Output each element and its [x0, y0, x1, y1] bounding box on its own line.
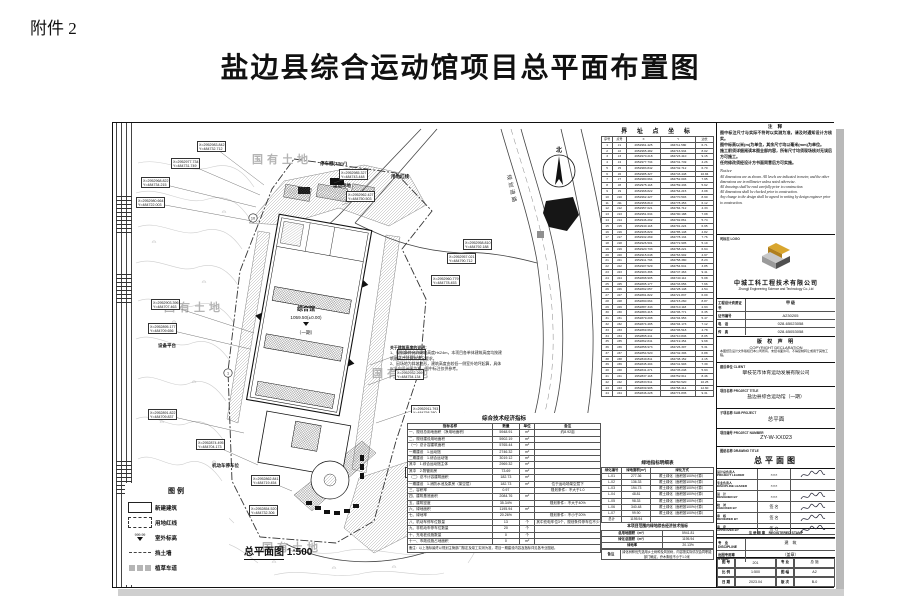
signature-row: 校 对CHECKED BY签 名: [717, 502, 835, 513]
height-note-block: 关于建筑高度的说明： 1、规划条件允许建筑高度H≤24m，本项目各单体建筑高度均…: [390, 345, 502, 371]
green-table-title: 绿地指标明细表: [601, 459, 714, 467]
table-row: 一、规划总用地面积（净用地面积）5948.91m²约8.92亩: [408, 430, 601, 436]
sheet-shadow-bottom: [118, 589, 844, 596]
plan-scale-label: 总平面图 1:500: [244, 543, 312, 558]
legend-item: 999.99室外标高: [125, 530, 229, 545]
signature-scribble: [800, 492, 826, 501]
copyright-title-zh: 版 权 声 明: [720, 338, 832, 345]
table-row: 44J442952846.228484774.8359.31: [602, 391, 714, 397]
svg-text:综合馆: 综合馆: [297, 305, 315, 313]
firm-info-row: 证书编号A230205: [717, 311, 835, 319]
legend-item: 挡土墙: [125, 545, 229, 560]
stamp-row: 注 册 师 章 REGISTERED STAMP: [717, 529, 835, 538]
drawing-sheet: 北 规划道路 国有土地 国有土地 国有土地 国有土地 综合馆 1059.50: [112, 122, 834, 588]
signature-row: 审 核REVIEWED BY签 名: [717, 513, 835, 524]
svg-text:1059.50(±0.00): 1059.50(±0.00): [290, 315, 322, 320]
svg-text:国有土地: 国有土地: [252, 152, 312, 166]
credential-section: 工程设计资质证书 甲 级 证书编号A230205电 话028-65023058传…: [717, 299, 835, 337]
firm-logo-icon: [759, 242, 793, 272]
boundary-table-title: 界 址 点 坐 标: [601, 125, 714, 136]
subproject-field: 子项名称 SUB PROJECT 总平面: [717, 409, 835, 429]
coordinate-callout: X=2952980.664Y=484722.003: [136, 197, 165, 208]
red-line-label: 用地红线: [391, 174, 409, 180]
page: 附件 2 盐边县综合运动馆项目总平面布置图: [0, 0, 921, 596]
coordinate-callout: X=2952977.734Y=484731.749: [171, 158, 200, 169]
eco-table-title: 综合技术经济指标: [407, 413, 601, 423]
firm-section-label: 司标志 LOGO: [720, 236, 832, 241]
coordinate-callout: X=2952968.822Y=484734.215: [141, 177, 170, 188]
client-field: 建设单位 CLIENT 攀枝花市体育运动发展有限公司: [717, 363, 835, 387]
meta-value: B-0: [794, 577, 835, 587]
green-remark: 绿化树种优先选用乡土树种及风景树，内容按实际情况会同职能部门确定，乔木胸径不小于…: [620, 550, 713, 560]
coordinate-callout: X=2952960.779Y=484778.453: [431, 275, 460, 286]
cert-row: 出图专用章 STAMP（盖章）: [717, 550, 835, 562]
plan-name: 总平面图: [244, 547, 284, 560]
svg-text:1: 1: [227, 372, 229, 376]
green-remark-label: 备注: [602, 550, 621, 560]
legend-title: 图例: [125, 486, 229, 496]
firm-logo: [720, 242, 832, 277]
signature-row: 设计总负责人PROJECT LEADER×××: [717, 469, 835, 480]
coordinate-callout: X=2952862.841Y=484719.454: [251, 475, 280, 486]
table-row: 总计1195.94: [602, 516, 714, 522]
green-summary-title: 本项目范围内绿地综合经济技术指标: [601, 523, 714, 530]
signature-scribble: [800, 503, 826, 512]
notes-section: 注 释 图中标注尺寸与实际不符时以实测为准，请及时通知设计方核实。图中标高以米(…: [717, 123, 835, 235]
table-row: 八、机动车停车位数量13个其中充电车位3个，规划条件停车位不少于13个: [408, 519, 601, 525]
coordinate-callout: X=2952958.810Y=484792.188: [463, 239, 492, 250]
signature-row: 专业负责人DISCIPLINE LEADER×××: [717, 480, 835, 491]
copyright-text: 本图纸及设计文件版权归本公司所有，未经书面许可，不得复制转让或用于其他工程。: [720, 350, 832, 358]
coordinate-callout: X=2952891.822Y=484709.837: [148, 409, 177, 420]
firm-name-en: Zhongji Engineering Science and Technolo…: [720, 287, 832, 291]
sheet-shadow-right: [836, 129, 844, 591]
coordinate-callout: X=2952874.495Y=484704.173: [196, 439, 225, 450]
firm-section: 司标志 LOGO 中城工科工程技术有限公司 Zhongji Engineerin…: [717, 235, 835, 299]
page-title: 盐边县综合运动馆项目总平面布置图: [0, 46, 921, 86]
svg-text:10: 10: [251, 217, 255, 221]
firm-name-zh: 中城工科工程技术有限公司: [720, 278, 832, 287]
attachment-label: 附件 2: [30, 14, 77, 39]
coordinate-callout: X=2952985.327Y=484743.448: [339, 169, 368, 180]
existing-structure-annex: [537, 231, 544, 238]
coordinate-callout: X=2952854.520Y=484732.306: [249, 505, 278, 516]
road-name-label: 规划道路: [505, 174, 519, 205]
signature-section: 设计总负责人PROJECT LEADER×××专业负责人DISCIPLINE L…: [717, 469, 835, 529]
coordinate-callout: X=2952903.396Y=484707.463: [151, 299, 180, 310]
green-space-table: 绿地指标明细表 绿化编号绿地面积(m²) 绿化方式 L-01277.36覆土绿化…: [601, 459, 714, 560]
table-row: 十一、市政设施占地面积0m²: [408, 539, 601, 545]
signature-row: 设 计DESIGNED BY×××: [717, 491, 835, 502]
table-row: 一期建设 1.消防水池及泵房（架空层）182.73m²位于运动场架空层下: [408, 481, 601, 487]
meta-value: A2: [794, 568, 835, 578]
legend-item: 用地红线: [125, 515, 229, 530]
firm-info-row: 传 真028-65053058: [717, 327, 835, 335]
cred-label: 工程设计资质证书: [717, 299, 746, 311]
north-arrow: 北: [543, 146, 575, 187]
boundary-coordinates-table: 界 址 点 坐 标 序号点号 XY 边长 1J12952961.42548471…: [601, 125, 714, 397]
cert-row: 专 业 DISCIPLINE建 筑: [717, 538, 835, 550]
legend: 图例 新建建筑用地红线999.99室外标高挡土墙植草车道: [125, 483, 229, 585]
signature-scribble: [800, 514, 826, 523]
coordinate-callout: X=2952957.021Y=484790.712: [447, 253, 476, 264]
copyright-section: 版 权 声 明 COPYRIGHT DECLARATION 本图纸及设计文件版权…: [717, 337, 835, 363]
meta-grid: 图 号201专 业总 施比 例1:500图 幅A2日 期2023.04版 次B-…: [717, 558, 835, 587]
coordinate-callout: X=2952895.177Y=484709.656: [148, 323, 177, 334]
eco-remark: 备注：以上指标最终以规划主管部门核定及竣工实测为准，项目一期建设内容及指标详见各…: [407, 545, 601, 553]
drawing-title-field: 图纸名称 DRAWING TITLE 总平面图: [717, 447, 835, 469]
coordinate-callout: X=2952983.842Y=484732.712: [197, 141, 226, 152]
coordinate-callout: X=2952962.427Y=484750.503: [346, 191, 375, 202]
legend-item: 新建建筑: [125, 500, 229, 515]
cred-value: 甲 级: [746, 299, 835, 311]
title-block: 注 释 图中标注尺寸与实际不符时以实测为准，请及时通知设计方核实。图中标高以米(…: [716, 123, 835, 587]
project-number-field: 项目编号 PROJECT NUMBER ZY-W-XX023: [717, 429, 835, 447]
eco-indicators-table: 综合技术经济指标 指标名称数量 单位备注 一、规划总用地面积（净用地面积）594…: [407, 413, 601, 553]
north-label: 北: [556, 146, 562, 154]
signature-scribble: [800, 470, 826, 479]
road-centerline: [511, 129, 553, 423]
parking-label: 机动车停车位: [212, 463, 239, 469]
cert-section: 专 业 DISCIPLINE建 筑出图专用章 STAMP（盖章）: [717, 538, 835, 558]
equipment-platform-label: 设备平台: [158, 343, 176, 349]
meta-value: 1:500: [735, 568, 776, 578]
plan-scale-value: 1:500: [287, 547, 313, 558]
project-title-field: 项目名称 PROJECT TITLE 盐边县综合运动馆（一期）: [717, 387, 835, 409]
summary-row: 绿地率20.13%: [602, 543, 714, 549]
firm-info-row: 电 话028-65023058: [717, 319, 835, 327]
meta-value: 2023.04: [735, 577, 776, 587]
legend-item: 植草车道: [125, 560, 229, 575]
sports-field-label: 运动场地: [333, 183, 351, 189]
bike-shed-label: 停车棚(33m²): [320, 161, 347, 167]
